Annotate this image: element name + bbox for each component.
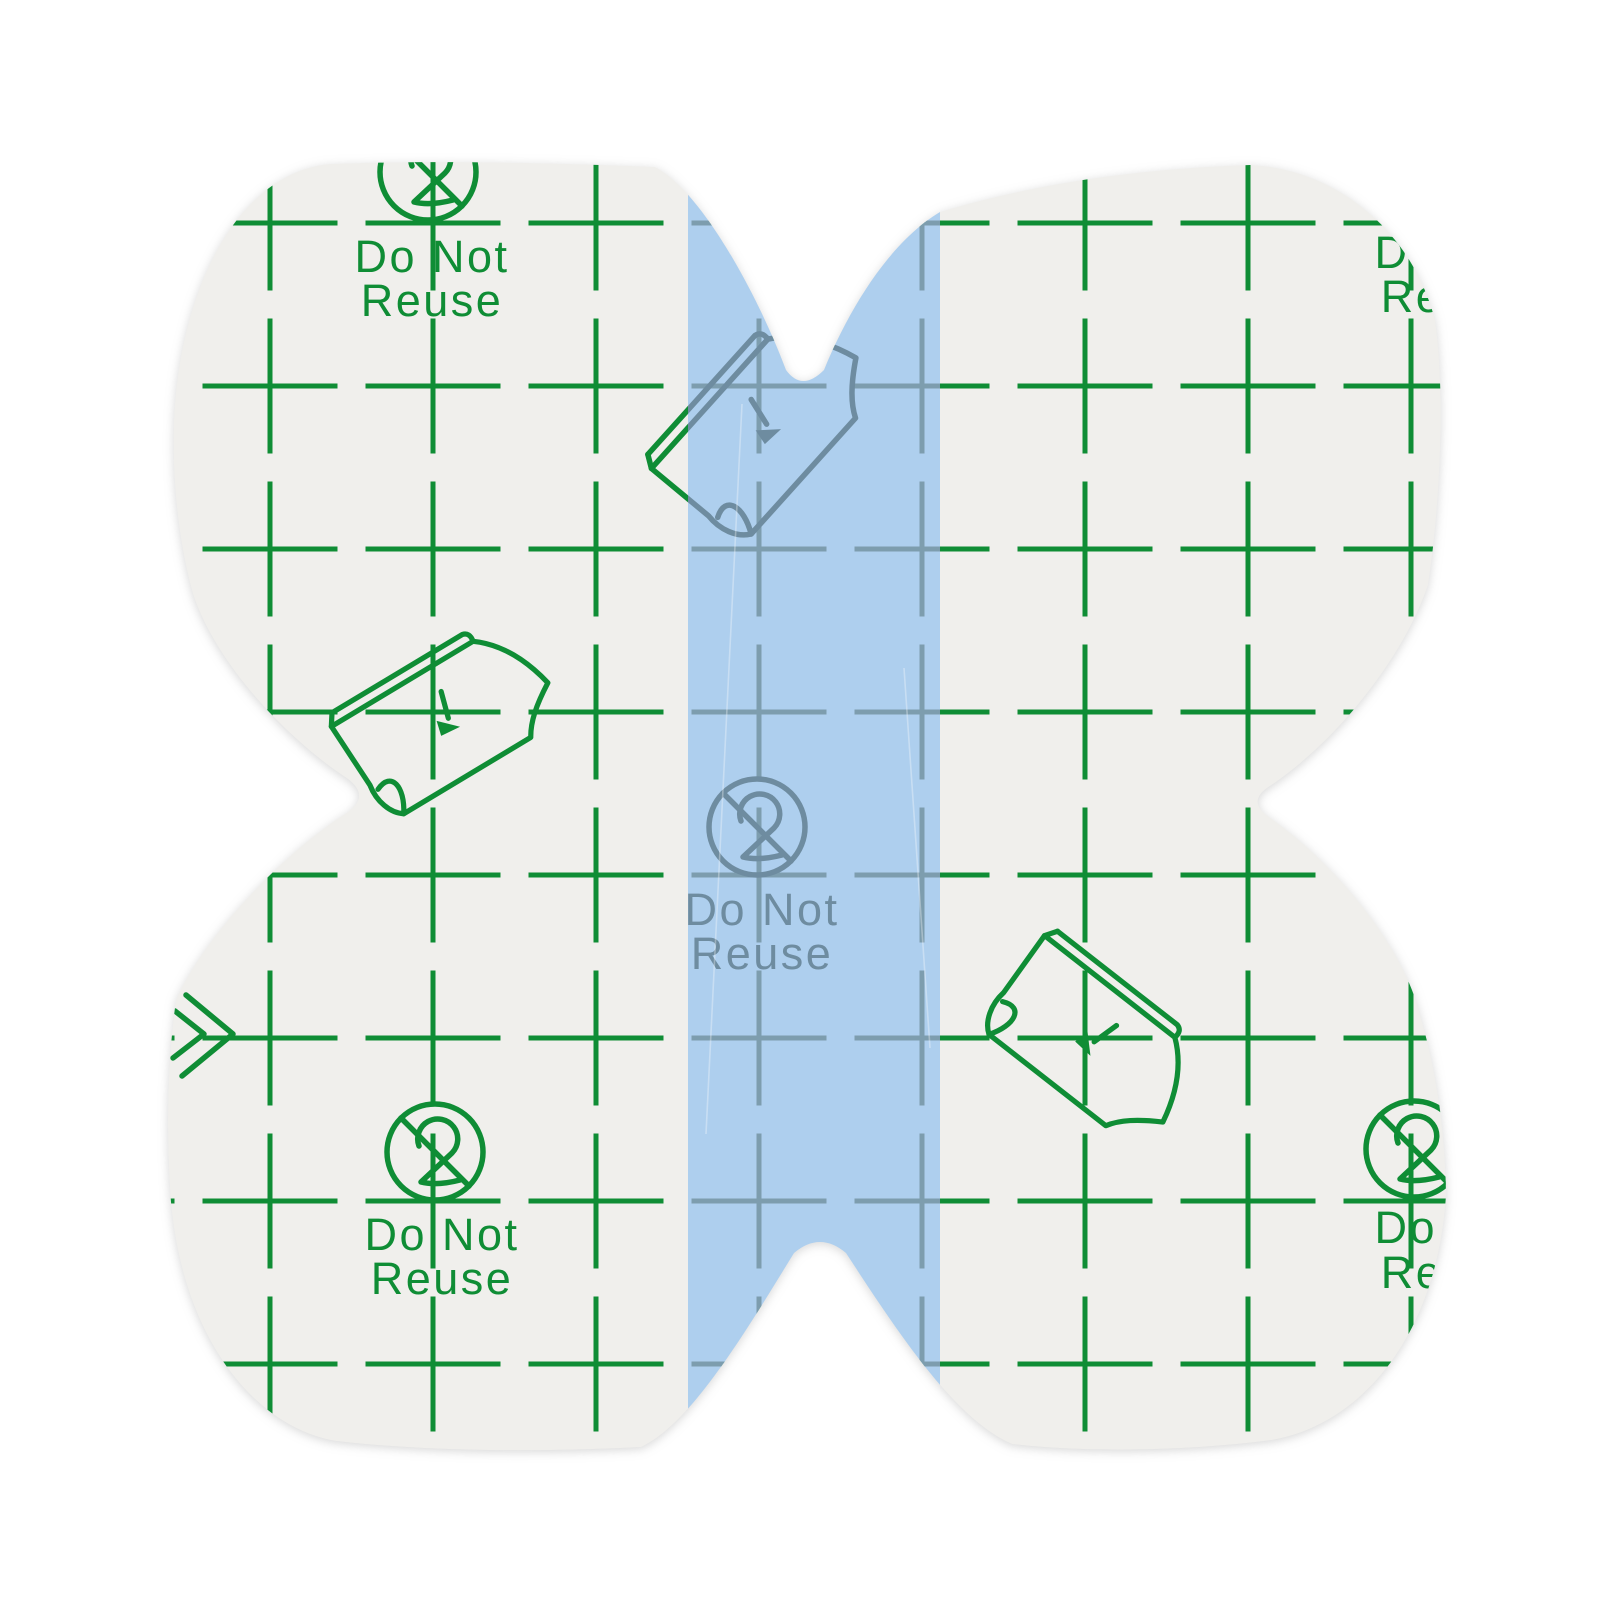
product-photo-canvas: Do Not Reuse Do Not Reuse Do Not Reuse D…: [0, 0, 1600, 1600]
do-not-reuse-text-bottom-left-line2: Reuse: [371, 1253, 514, 1304]
do-not-reuse-text-top-left-line2: Reuse: [361, 275, 504, 326]
dressing-photo: Do Not Reuse Do Not Reuse Do Not Reuse D…: [0, 0, 1600, 1600]
do-not-reuse-text-center-line2: Reuse: [691, 928, 834, 979]
